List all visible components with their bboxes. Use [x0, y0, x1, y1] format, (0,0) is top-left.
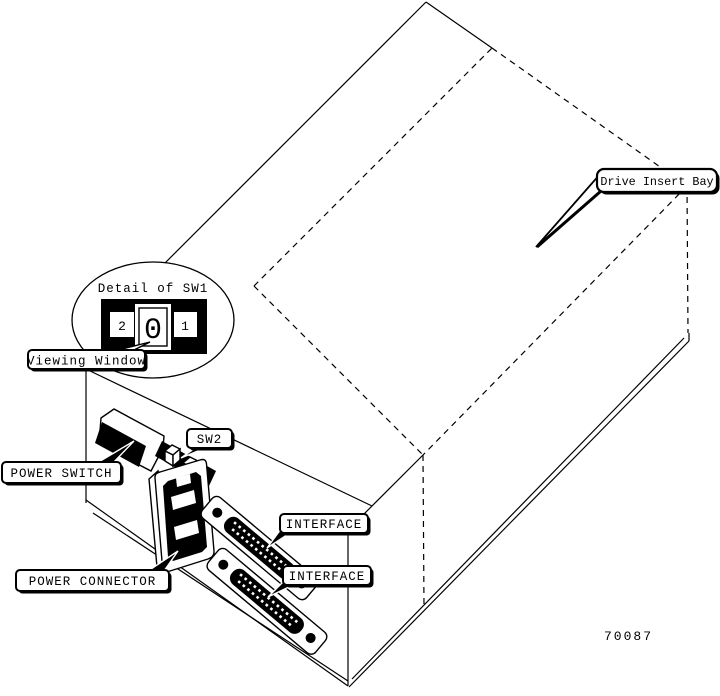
inner-hidden-vertical [423, 455, 424, 608]
bay-hidden-edge-top [492, 48, 687, 186]
interface-top-callout: INTERFACE [267, 514, 371, 548]
right-hidden-vertical [687, 186, 688, 333]
power-connector-label: POWER CONNECTOR [29, 575, 157, 589]
bottom-left-edge-inner [93, 513, 348, 681]
drive-insert-bay-label: Drive Insert Bay [600, 175, 713, 189]
diagram-canvas: Detail of SW1 2 0 1 Viewing Window POWER… [0, 0, 720, 696]
interface-bottom-label: INTERFACE [289, 570, 366, 584]
top-right-edge-solid [426, 2, 492, 48]
power-switch-label: POWER SWITCH [10, 467, 112, 481]
bay-opening-edge-se [254, 286, 423, 455]
figure-drive-enclosure-diagram: Detail of SW1 2 0 1 Viewing Window POWER… [0, 0, 720, 696]
bay-opening-edge-ne [254, 48, 492, 286]
sw1-digit-right: 1 [181, 319, 189, 334]
sw1-digit-left: 2 [118, 319, 126, 334]
drive-insert-bay-callout: Drive Insert Bay [536, 169, 720, 247]
bottom-right-edge-inner [352, 338, 684, 679]
sw2-switch-1 [165, 445, 180, 466]
viewing-window-label: Viewing Window [27, 355, 146, 369]
power-connector-callout: POWER CONNECTOR [16, 551, 178, 594]
drive-insert-bay-pointer [536, 173, 601, 247]
sw2-label: SW2 [197, 433, 223, 447]
interface-top-label: INTERFACE [286, 518, 363, 532]
sw2-callout: SW2 [181, 429, 235, 458]
detail-title: Detail of SW1 [98, 282, 209, 296]
interface-bottom-callout: INTERFACE [268, 566, 374, 597]
drive-insert-bay-pointer-edge [537, 191, 601, 247]
figure-number: 70087 [604, 629, 653, 644]
power-connector-cavity [163, 472, 207, 561]
